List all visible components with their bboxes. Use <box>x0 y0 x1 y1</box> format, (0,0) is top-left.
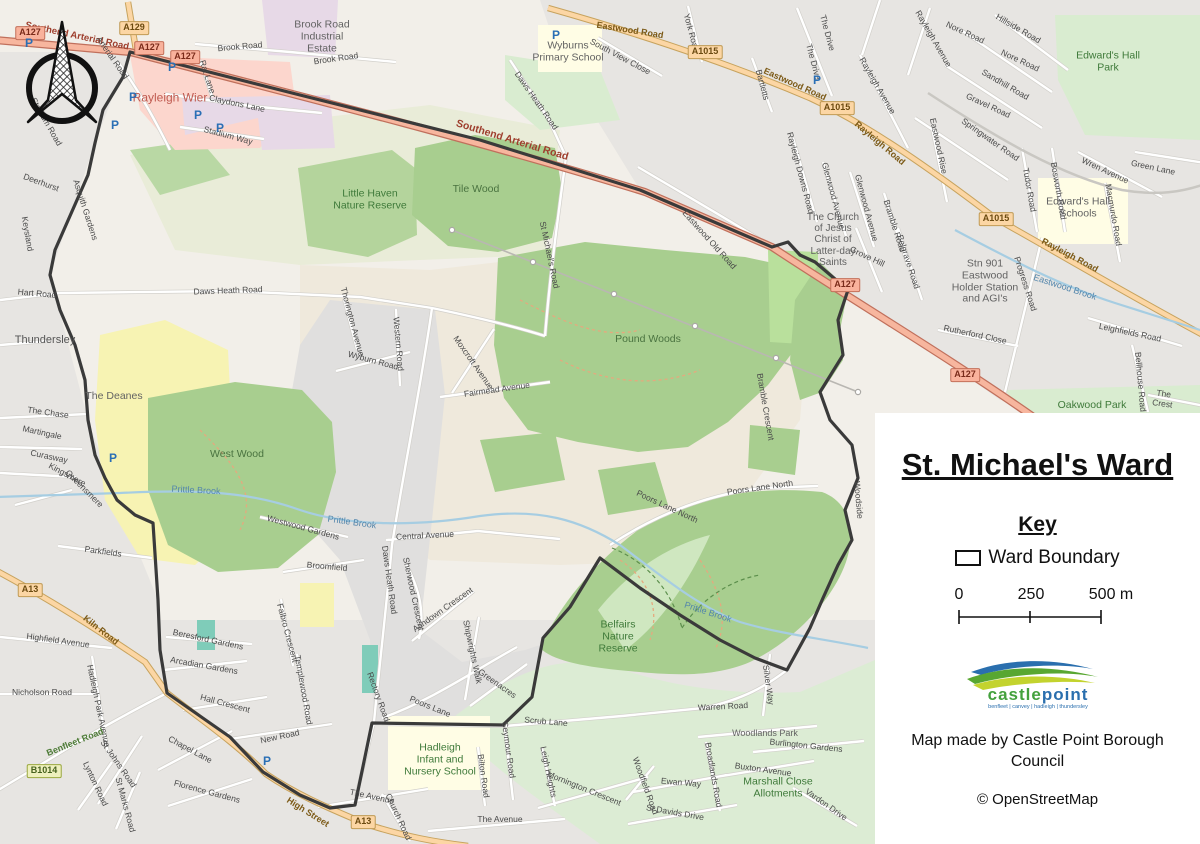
map-label: Sandhill Road <box>980 68 1031 103</box>
map-label: Chapel Lane <box>166 734 213 765</box>
map-label: Lynton Road <box>81 760 110 807</box>
map-label: The Avenue <box>477 815 522 825</box>
map-label: Deerhurst <box>22 172 60 194</box>
parking-icon: P <box>813 73 821 87</box>
map-label: Eastwood Road <box>596 20 664 41</box>
map-label: Seymour Road <box>499 721 516 778</box>
map-label: Stn 901 Eastwood Holder Station and AGI'… <box>952 259 1019 306</box>
map-label: Hadleigh Park Avenue <box>85 664 112 748</box>
map-label: Woodfield Road <box>630 756 660 816</box>
map-label: Brook Road <box>313 51 359 67</box>
map-label: Rayleigh Road <box>1040 236 1100 274</box>
map-screenshot: Southend Arterial RoadSouthend Arterial … <box>0 0 1200 844</box>
map-label: Moxcroft Avenue <box>451 334 495 391</box>
svg-text:castlepoint: castlepoint <box>987 685 1088 704</box>
map-label: Eastwood Old Road <box>680 209 738 272</box>
map-label: Kingsmere <box>47 461 87 488</box>
map-label: Glenwood Avenue <box>852 174 879 243</box>
map-label: Ashdown Crescent <box>411 586 475 635</box>
map-label: Buxton Avenue <box>734 761 792 778</box>
map-label: Glenwood Avenue <box>819 162 846 231</box>
map-label: Shipwrights Walk <box>461 619 484 684</box>
road-ref-badge: A127 <box>950 368 980 382</box>
map-label: Marshall Close Allotments <box>743 776 812 800</box>
map-label: Bramble Road <box>881 199 907 254</box>
map-label: Beresford Gardens <box>172 628 244 652</box>
road-ref-badge: A129 <box>119 21 149 35</box>
map-label: Hart Road <box>17 288 56 301</box>
map-label: Ewan Way <box>661 777 702 790</box>
map-label: Claydons Lane <box>208 93 265 114</box>
map-label: Kiln Road <box>81 613 120 647</box>
map-label: Eastwood Rise <box>927 117 948 174</box>
map-label: Daws Heath Road <box>512 70 559 132</box>
parking-icon: P <box>194 108 202 122</box>
map-label: Belgrave Road <box>895 234 921 290</box>
map-label: Keysland <box>19 216 34 252</box>
map-label: The Church of Jesus Christ of Latter-day… <box>807 212 859 268</box>
road-ref-badge: A127 <box>830 278 860 292</box>
map-label: Rectory Road <box>365 671 392 723</box>
map-label: Central Avenue <box>396 530 454 543</box>
road-ref-badge: A1015 <box>820 101 855 115</box>
svg-text:0: 0 <box>955 586 964 603</box>
map-label: Gravel Road <box>964 92 1011 121</box>
key-heading: Key <box>875 513 1200 537</box>
map-label: Greenacres <box>476 667 518 700</box>
road-ref-badge: A13 <box>351 815 376 829</box>
map-label: Western Road <box>391 317 405 372</box>
map-label: Curasway <box>30 448 69 465</box>
map-label: Poors Lane North <box>635 489 699 526</box>
map-label: Prittle Brook <box>683 600 733 625</box>
map-label: Oakwood Park <box>1058 400 1127 412</box>
scale-bar: 0 250 500 m <box>875 583 1200 629</box>
map-label: Tile Wood <box>453 184 500 196</box>
map-label: Rayleigh Downs Road <box>785 131 816 215</box>
road-ref-badge: A13 <box>18 583 43 597</box>
parking-icon: P <box>168 60 176 74</box>
svg-text:benfleet | canvey | hadleigh |: benfleet | canvey | hadleigh | thundersl… <box>988 704 1088 710</box>
map-label: Florence Gardens <box>173 779 241 806</box>
map-label: The Chase <box>27 405 70 420</box>
parking-icon: P <box>111 118 119 132</box>
map-label: Prittle Brook <box>327 514 377 531</box>
map-title: St. Michael's Ward <box>875 447 1200 483</box>
map-label: Progress Road <box>1012 256 1039 313</box>
map-label: The Deanes <box>85 391 142 403</box>
parking-icon: P <box>216 121 224 135</box>
road-ref-badge: A1015 <box>979 212 1014 226</box>
map-label: Hillside Road <box>994 12 1042 45</box>
map-label: Church Road <box>383 792 413 841</box>
map-label: St Marks Road <box>113 777 137 834</box>
map-label: Southend Arterial Road <box>454 118 569 163</box>
map-label: Bramble Crescent <box>754 373 775 442</box>
map-label: St Davids Drive <box>645 803 704 823</box>
map-label: Nore Road <box>999 48 1040 74</box>
map-label: Rayleigh Wier <box>133 91 208 104</box>
map-label: Highfield Avenue <box>26 632 90 650</box>
map-label: Edward's Hall Park <box>1076 50 1140 74</box>
map-label: Wren Avenue <box>1080 156 1130 186</box>
map-label: Grove Hill <box>848 245 886 269</box>
map-label: Parkfields <box>84 545 122 560</box>
map-label: Vardon Drive <box>803 787 849 823</box>
map-label: Warren Road <box>698 701 749 713</box>
map-label: The Avenue <box>349 788 395 807</box>
map-label: Little Haven Nature Reserve <box>333 188 407 212</box>
map-label: Broadlands Road <box>703 742 724 808</box>
map-label: Green Lane <box>1130 159 1176 178</box>
map-label: New Road <box>260 728 301 746</box>
map-label: Macmurdo Road <box>1103 183 1123 247</box>
key-row-ward-boundary: Ward Boundary <box>875 547 1200 569</box>
svg-text:250: 250 <box>1018 586 1045 603</box>
map-label: Rayleigh Road <box>853 119 907 167</box>
map-label: Brook Road Industrial Estate <box>294 19 349 54</box>
map-label: Daws Heath Road <box>379 545 398 615</box>
ward-boundary-label: Ward Boundary <box>988 547 1119 569</box>
map-label: Benfleet Road <box>45 726 105 758</box>
map-label: Rayleigh Avenue <box>913 9 953 69</box>
map-label: St Michael's Road <box>537 221 560 290</box>
map-label: West Wood <box>210 449 264 461</box>
map-label: Nicholson Road <box>12 688 72 698</box>
map-label: Belfairs Nature Reserve <box>598 619 637 654</box>
map-label: Arcadian Gardens <box>169 655 238 676</box>
road-ref-badge: A1015 <box>688 45 723 59</box>
map-label: Brook Road <box>217 40 263 53</box>
map-label: Woodside <box>852 481 865 519</box>
road-ref-badge: A127 <box>134 41 164 55</box>
map-label: Leighfields Road <box>1098 322 1162 344</box>
map-label: The Crest <box>1143 387 1182 411</box>
map-label: Silver Way <box>760 664 775 705</box>
map-label: Tudor Road <box>1020 167 1037 213</box>
map-label: Leigh Heights <box>538 746 558 799</box>
osm-credit: © OpenStreetMap <box>875 791 1200 808</box>
map-label: Rutherford Close <box>943 324 1008 347</box>
map-label: Hall Crescent <box>199 693 251 715</box>
map-label: Fairmead Avenue <box>463 381 530 400</box>
map-label: Thorington Avenue <box>338 286 366 357</box>
map-label: Falbro Crescent <box>275 603 300 664</box>
map-label: Nore Road <box>944 20 985 46</box>
credit-text: Map made by Castle Point Borough Council <box>905 731 1170 773</box>
parking-icon: P <box>263 754 271 768</box>
map-label: Edward's Hall Schools <box>1046 196 1110 220</box>
parking-icon: P <box>129 90 137 104</box>
map-label: Broomfield <box>306 560 347 573</box>
map-label: Wyburn Road <box>347 350 400 373</box>
map-label: Poors Lane <box>408 694 452 719</box>
map-label: Springwater Road <box>959 117 1020 164</box>
ward-boundary-swatch-icon <box>955 550 981 566</box>
road-ref-badge: B1014 <box>27 764 62 778</box>
map-label: Woodlands Park <box>732 728 798 738</box>
map-label: Pound Woods <box>615 334 681 346</box>
castlepoint-logo: castlepoint benfleet | canvey | hadleigh… <box>953 656 1123 710</box>
map-label: Burlington Gardens <box>769 737 843 754</box>
map-label: St Johns Road <box>98 738 138 789</box>
map-label: Queensmere <box>63 468 104 509</box>
map-label: The Drive <box>818 14 837 52</box>
parking-icon: P <box>552 28 560 42</box>
parking-icon: P <box>109 451 117 465</box>
map-label: Stadium Way <box>203 125 254 147</box>
map-label: Rat Lane <box>197 59 217 95</box>
map-label: Prittle Brook <box>171 484 220 497</box>
map-label: Thundersley <box>15 334 76 346</box>
map-label: Bosworth Road <box>1048 162 1067 221</box>
map-label: Rayleigh Avenue <box>857 56 897 116</box>
map-label: Asquith Gardens <box>71 178 100 241</box>
map-label: Bilton Road <box>475 754 491 799</box>
map-label: Sherwood Crescent <box>401 556 426 631</box>
map-label: South View Close <box>588 37 652 77</box>
map-label: Mornington Crescent <box>546 770 623 808</box>
map-label: Hadleigh Infant and Nursery School <box>404 742 476 777</box>
map-label: Scrub Lane <box>524 715 568 728</box>
map-label: Bellhouse Road <box>1133 352 1148 413</box>
map-label: Daws Heath Road <box>193 285 262 297</box>
map-label: Templewood Road <box>292 655 314 726</box>
legend-panel: St. Michael's Ward Key Ward Boundary 0 2… <box>875 413 1200 844</box>
map-label: Martingale <box>22 424 63 442</box>
north-arrow-icon <box>14 16 110 134</box>
map-label: High Street <box>285 795 331 829</box>
svg-text:500 m: 500 m <box>1089 586 1133 603</box>
map-label: Bartletts <box>753 69 770 102</box>
map-label: Eastwood Brook <box>1032 272 1097 302</box>
map-label: Westwood Gardens <box>266 514 340 542</box>
map-label: Poors Lane North <box>726 479 793 498</box>
map-label: Wyburns Primary School <box>532 40 603 64</box>
